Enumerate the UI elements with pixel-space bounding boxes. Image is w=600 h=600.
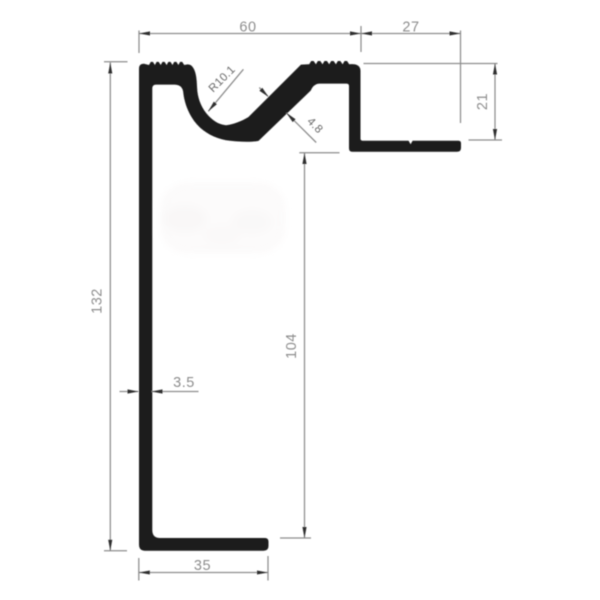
svg-text:132: 132 [90,288,106,314]
svg-text:R10.1: R10.1 [207,64,238,95]
svg-text:27: 27 [402,19,419,35]
svg-text:60: 60 [239,19,256,35]
svg-text:104: 104 [284,333,300,359]
svg-text:21: 21 [475,93,491,110]
svg-text:3.5: 3.5 [173,375,195,391]
svg-text:35: 35 [194,558,211,574]
